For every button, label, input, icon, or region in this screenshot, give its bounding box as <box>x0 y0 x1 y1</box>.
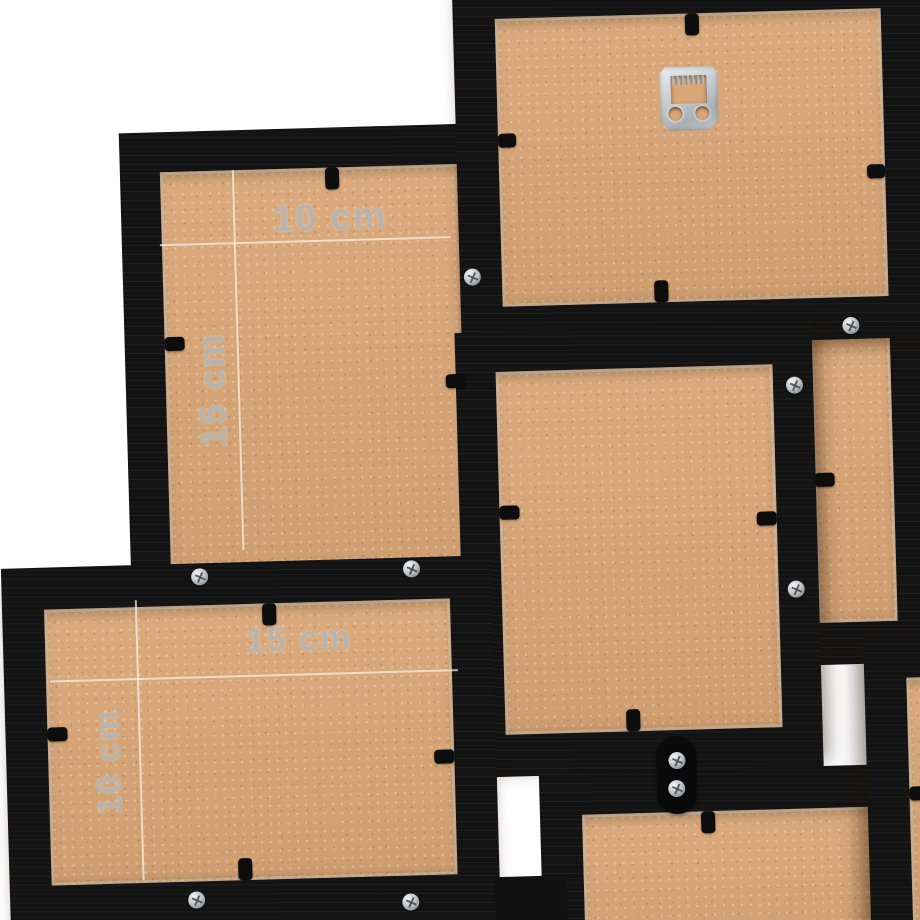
backing-clip <box>757 511 777 526</box>
dimension-label-height: 10 cm <box>88 708 130 815</box>
backing-clip <box>626 709 641 731</box>
mdf-backing <box>495 8 889 307</box>
backing-clip <box>499 505 519 520</box>
backing-clip <box>815 473 835 488</box>
backing-clip <box>701 811 716 833</box>
backing-clip <box>446 374 466 389</box>
backing-clip <box>434 749 454 764</box>
backing-clip <box>867 164 885 178</box>
hanger-teeth <box>670 75 706 85</box>
backing-clip <box>654 280 669 302</box>
backing-clip <box>325 167 340 189</box>
backing-clip <box>238 858 253 880</box>
backing-clip <box>498 133 516 147</box>
frame-corner-joint <box>495 875 568 920</box>
backing-clip <box>164 337 184 352</box>
sawtooth-hanger <box>659 66 719 132</box>
dimension-label-width: 10 cm <box>272 195 388 240</box>
backing-clip <box>685 13 700 35</box>
frame-back-top-center <box>452 0 920 350</box>
backing-clip <box>47 727 67 742</box>
backing-clip <box>909 786 920 800</box>
hanger-window <box>670 75 707 104</box>
frame-back-bottom-right <box>863 631 920 920</box>
dimension-label-width: 15 cm <box>245 619 352 661</box>
mdf-backing <box>496 364 783 735</box>
collage-frame-back: 10 cm 15 cm 15 cm 10 cm <box>0 0 920 920</box>
hanger-hole <box>695 106 709 120</box>
hanger-hole <box>668 107 682 121</box>
frame-back-bottom-center <box>539 761 920 920</box>
product-photo: 10 cm 15 cm 15 cm 10 cm <box>0 0 920 920</box>
dimension-label-height: 15 cm <box>190 332 235 448</box>
frame-connector-plate <box>656 736 698 815</box>
backing-clip <box>262 603 277 625</box>
